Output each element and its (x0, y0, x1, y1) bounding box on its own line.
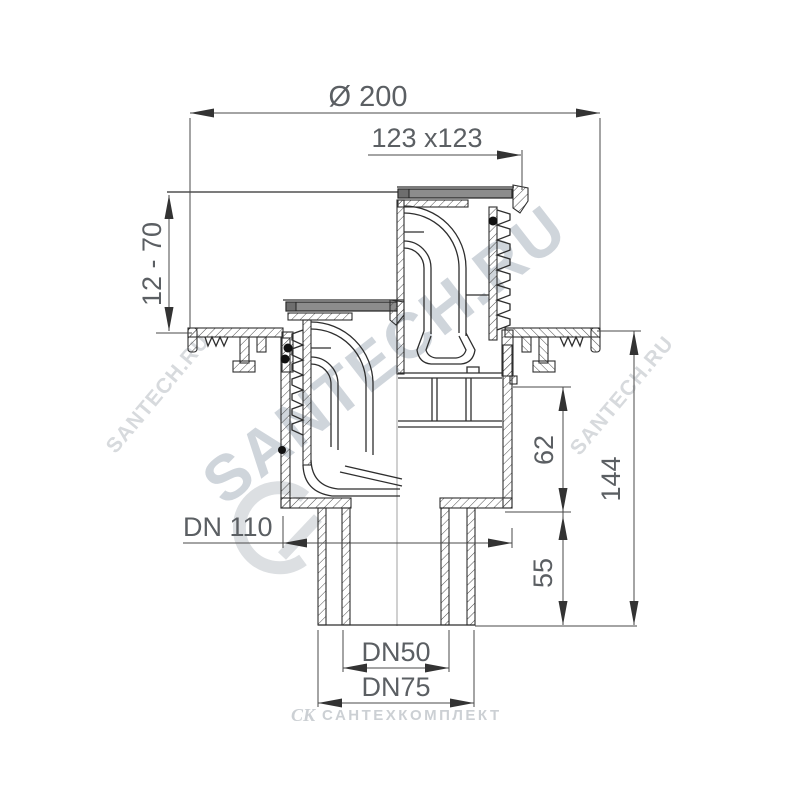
dim-label-outlet-inner: DN50 (361, 637, 430, 667)
body-wall-left (281, 338, 290, 508)
seal-ring-lowered-1 (284, 344, 293, 353)
technical-drawing: SANTECH.RU SANTECH.RU SANTECH.RU (0, 0, 800, 800)
dim-label-body-diameter: DN 110 (183, 512, 273, 542)
funnel-lowered-ribbed-wall (303, 320, 311, 465)
dim-label-grate-size: 123 x123 (371, 123, 482, 153)
outlet-dn50-wall-right (441, 508, 449, 625)
seal-ring-lowered-2 (281, 355, 290, 364)
outlet-dn75-wall-left (318, 508, 326, 625)
dim-label-spigot-height: 55 (528, 558, 558, 588)
funnel-bowl-inner (311, 460, 400, 489)
funnel-raised-ribbed-wall (489, 207, 497, 340)
funnel-bowl-outer (303, 465, 400, 496)
footer-logo-glyph: СК (291, 705, 317, 725)
footer-brand-text: САНТЕХКОМПЛЕКТ (322, 707, 502, 724)
grate-raised (398, 189, 512, 198)
body-bottom-right (440, 498, 512, 508)
dim-label-adjust-height: 12 - 70 (137, 222, 167, 306)
outlet-dn50-wall-left (342, 508, 350, 625)
watermark-logo-slash (282, 518, 318, 556)
bowl-spout (340, 466, 402, 486)
dim-spigot-height: 55 (528, 512, 568, 625)
dim-grate-size: 123 x123 (368, 123, 522, 190)
grate-lowered (286, 302, 397, 311)
seal-ring-raised (489, 217, 498, 226)
dim-label-flange-diameter: Ø 200 (329, 81, 408, 113)
outlet-dn75-wall-right (467, 508, 475, 625)
seal-ring-lowered-3 (278, 446, 286, 454)
dim-outlet-inner: DN50 (343, 630, 449, 673)
dim-label-upper-height: 62 (529, 435, 559, 465)
footer-brand: СК САНТЕХКОМПЛЕКТ (291, 705, 502, 725)
dim-label-outlet-outer: DN75 (361, 672, 430, 702)
body-bottom-left (281, 498, 351, 508)
watermark-right: SANTECH.RU (566, 332, 679, 460)
flange-right (505, 328, 600, 372)
funnel-raised-left-wall (397, 200, 404, 374)
dim-upper-height: 62 (505, 387, 571, 512)
dim-total-height: 144 (475, 331, 641, 626)
dim-label-total-height: 144 (596, 456, 626, 501)
drawing-page: SANTECH.RU SANTECH.RU SANTECH.RU (0, 0, 800, 800)
body-wall-right (503, 345, 512, 508)
dim-adjust-height: 12 - 70 (137, 195, 192, 333)
